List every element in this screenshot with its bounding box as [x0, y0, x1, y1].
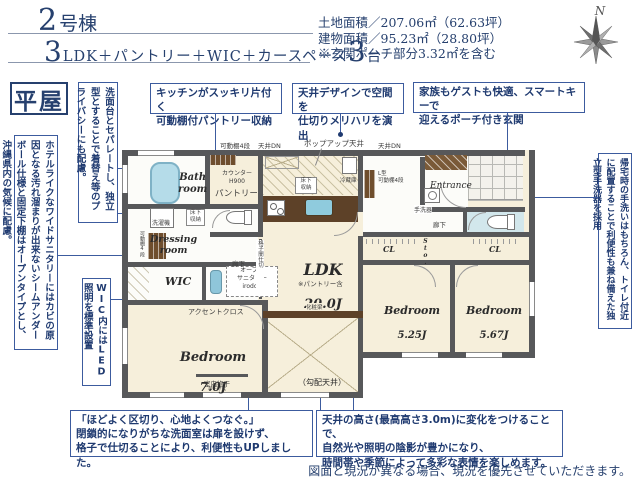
annotation-hallway2: 廊下	[433, 219, 446, 229]
wic-shelf-hatch	[127, 265, 149, 301]
area-info: 土地面積／207.06㎡（62.63坪） 建物面積／95.23㎡（28.80坪）…	[318, 15, 510, 62]
annotation-washer: 洗濯機	[152, 218, 170, 227]
building-area: 建物面積／95.23㎡（28.80坪）	[318, 31, 510, 47]
building-number-suffix: 号棟	[59, 9, 97, 36]
room-label-dressing: Dressing room	[150, 235, 197, 257]
annotation-open-sanitary: オープン サニタリー irodori	[226, 266, 278, 297]
callout-washstand: 洗面台とセパレートし、独立型とすることで着替え等のプライバシーにも配慮。	[78, 82, 118, 223]
wall	[258, 150, 263, 237]
room-label-entrance: Entrance	[430, 181, 472, 191]
burner-icon	[270, 203, 277, 210]
callout-lattice-partition: 「ほどよく区切り、心地よくつなぐ。」 閉鎖的になりがちな洗面室は扉を設けず、 格…	[70, 410, 313, 457]
annotation-counter: カウンター H900	[222, 170, 252, 185]
pantry-shelf	[210, 155, 236, 165]
porch-step-line	[468, 199, 523, 200]
room-name-text: Bedroom	[158, 351, 268, 366]
room-name-text: Bedroom	[460, 305, 528, 318]
flyer-page: 2 号棟 3 LDK＋パントリー＋WIC＋カースペース 3 台 土地面積／207…	[0, 0, 637, 480]
wall	[210, 232, 263, 237]
wall	[202, 262, 206, 305]
land-area: 土地面積／207.06㎡（62.63坪）	[318, 15, 510, 31]
wall	[363, 260, 535, 265]
room-label-wic: WIC	[165, 276, 191, 289]
room-label-pantry: パントリー	[215, 187, 258, 199]
toilet-bowl	[487, 215, 508, 229]
annotation-shelf4-top: 可動棚4段	[220, 140, 250, 150]
wall	[363, 232, 535, 237]
annotation-hanging-type: 吊下げ式	[208, 386, 226, 392]
sanitary-basin	[210, 270, 222, 294]
bathtub	[150, 162, 180, 204]
l-shaped-shelf	[364, 170, 375, 198]
single-story-badge: 平屋	[10, 82, 68, 115]
overhead-cabinet	[265, 156, 299, 169]
basin-bowl-icon	[428, 191, 437, 200]
connector-dot	[338, 132, 343, 137]
callout-wic-led: WIC内にはLED照明を標準設置	[82, 278, 111, 386]
wall	[122, 300, 268, 305]
wall	[358, 150, 363, 212]
annotation-hallway1: 廊下	[232, 258, 245, 268]
room-label-bedroom2: Bedroom 5.25J	[378, 292, 446, 354]
callout-hotel-sanitary: ホテルライクなワイドサニタリーにはカビの原因となる汚れ溜まりが出来ないシームアン…	[14, 135, 58, 350]
callout-smart-entrance: 家族もゲストも快適、スマートキーで 迎えるポーチ付き玄関	[413, 82, 585, 113]
disclaimer-text: 図面と現況が異なる場合、現況を優先させていただきます。	[308, 462, 631, 479]
room-label-bedroom1: Bedroom 7.0J	[158, 336, 268, 410]
underfloor-storage-box: 床下 収納	[295, 177, 317, 194]
header-divider-bottom	[8, 62, 310, 63]
annotation-decorative-beam: 化粧梁	[306, 303, 323, 311]
floor-porch	[468, 153, 523, 201]
callout-handwash: 帰宅時の手洗いはもちろん、トイレ付近に配置することで利便性も兼ね備えた独立型手洗…	[598, 153, 632, 329]
annotation-ceiling-dn-left: 天井DN	[258, 140, 281, 150]
annotation-sloped-ceiling: （勾配天井）	[298, 377, 346, 388]
compass-rose-icon: N	[565, 2, 627, 68]
porch-note: ※玄関ポーチ部分3.32㎡を含む	[318, 46, 510, 62]
callout-ceiling-height: 天井の高さ(最高高さ3.0m)に変化をつけることで、 自然光や照明の陰影が豊かに…	[316, 410, 563, 457]
room-size-text: 5.25J	[378, 330, 446, 342]
underfloor-storage-box: 床下 収納	[186, 209, 205, 226]
window	[122, 165, 128, 193]
annotation-pantry-included: ※パントリー含	[298, 278, 343, 288]
room-label-bedroom3: Bedroom 5.67J	[460, 292, 528, 354]
wall	[529, 150, 535, 358]
annotation-popup-ceiling: ポップアップ天井	[304, 138, 364, 149]
callout-ceiling-design: 天井デザインで空間を 仕切りメリハリを演出	[292, 83, 404, 114]
room-label-closet1: CL	[383, 245, 395, 254]
room-size-text: 5.67J	[460, 330, 528, 342]
annotation-l-shelf: L型 可動棚4段	[378, 171, 404, 185]
burner-icon	[277, 208, 284, 215]
window	[138, 150, 174, 156]
window	[281, 392, 329, 398]
annotation-accent-cloth: アクセントクロス	[188, 307, 244, 317]
wall	[463, 212, 467, 234]
annotation-shelf4-vertical: 可動棚4段	[139, 231, 146, 263]
wall	[450, 265, 455, 353]
annotation-handwash-basin: 手洗器	[414, 205, 432, 214]
plan-ldk-count: 3	[44, 35, 63, 68]
room-size-text: 20.0J	[278, 298, 368, 313]
wall	[425, 207, 525, 212]
compass-north-label: N	[594, 4, 606, 18]
annotation-fridge: 冷蔵庫	[340, 176, 357, 184]
room-label-storage: Sto.	[421, 238, 428, 260]
callout-kitchen-pantry: キッチンがスッキリ片付く 可動棚付パントリー収納	[150, 83, 282, 114]
connector-line	[320, 398, 321, 410]
annotation-ceiling-dn-right: 天井DN	[378, 140, 401, 150]
toilet-tank	[507, 214, 515, 230]
room-label-closet2: CL	[489, 245, 501, 254]
room-label-bath: Bath room	[178, 172, 207, 195]
toilet-tank	[244, 210, 252, 225]
kitchen-sink	[305, 199, 333, 216]
header-divider-top	[8, 33, 313, 34]
shoe-closet	[425, 155, 467, 170]
annotation-lattice: 格子間仕切	[256, 240, 264, 296]
room-name-text: Bedroom	[378, 305, 446, 318]
window	[122, 328, 128, 364]
window	[529, 282, 535, 316]
refrigerator	[342, 157, 357, 174]
connector-line	[340, 113, 341, 134]
